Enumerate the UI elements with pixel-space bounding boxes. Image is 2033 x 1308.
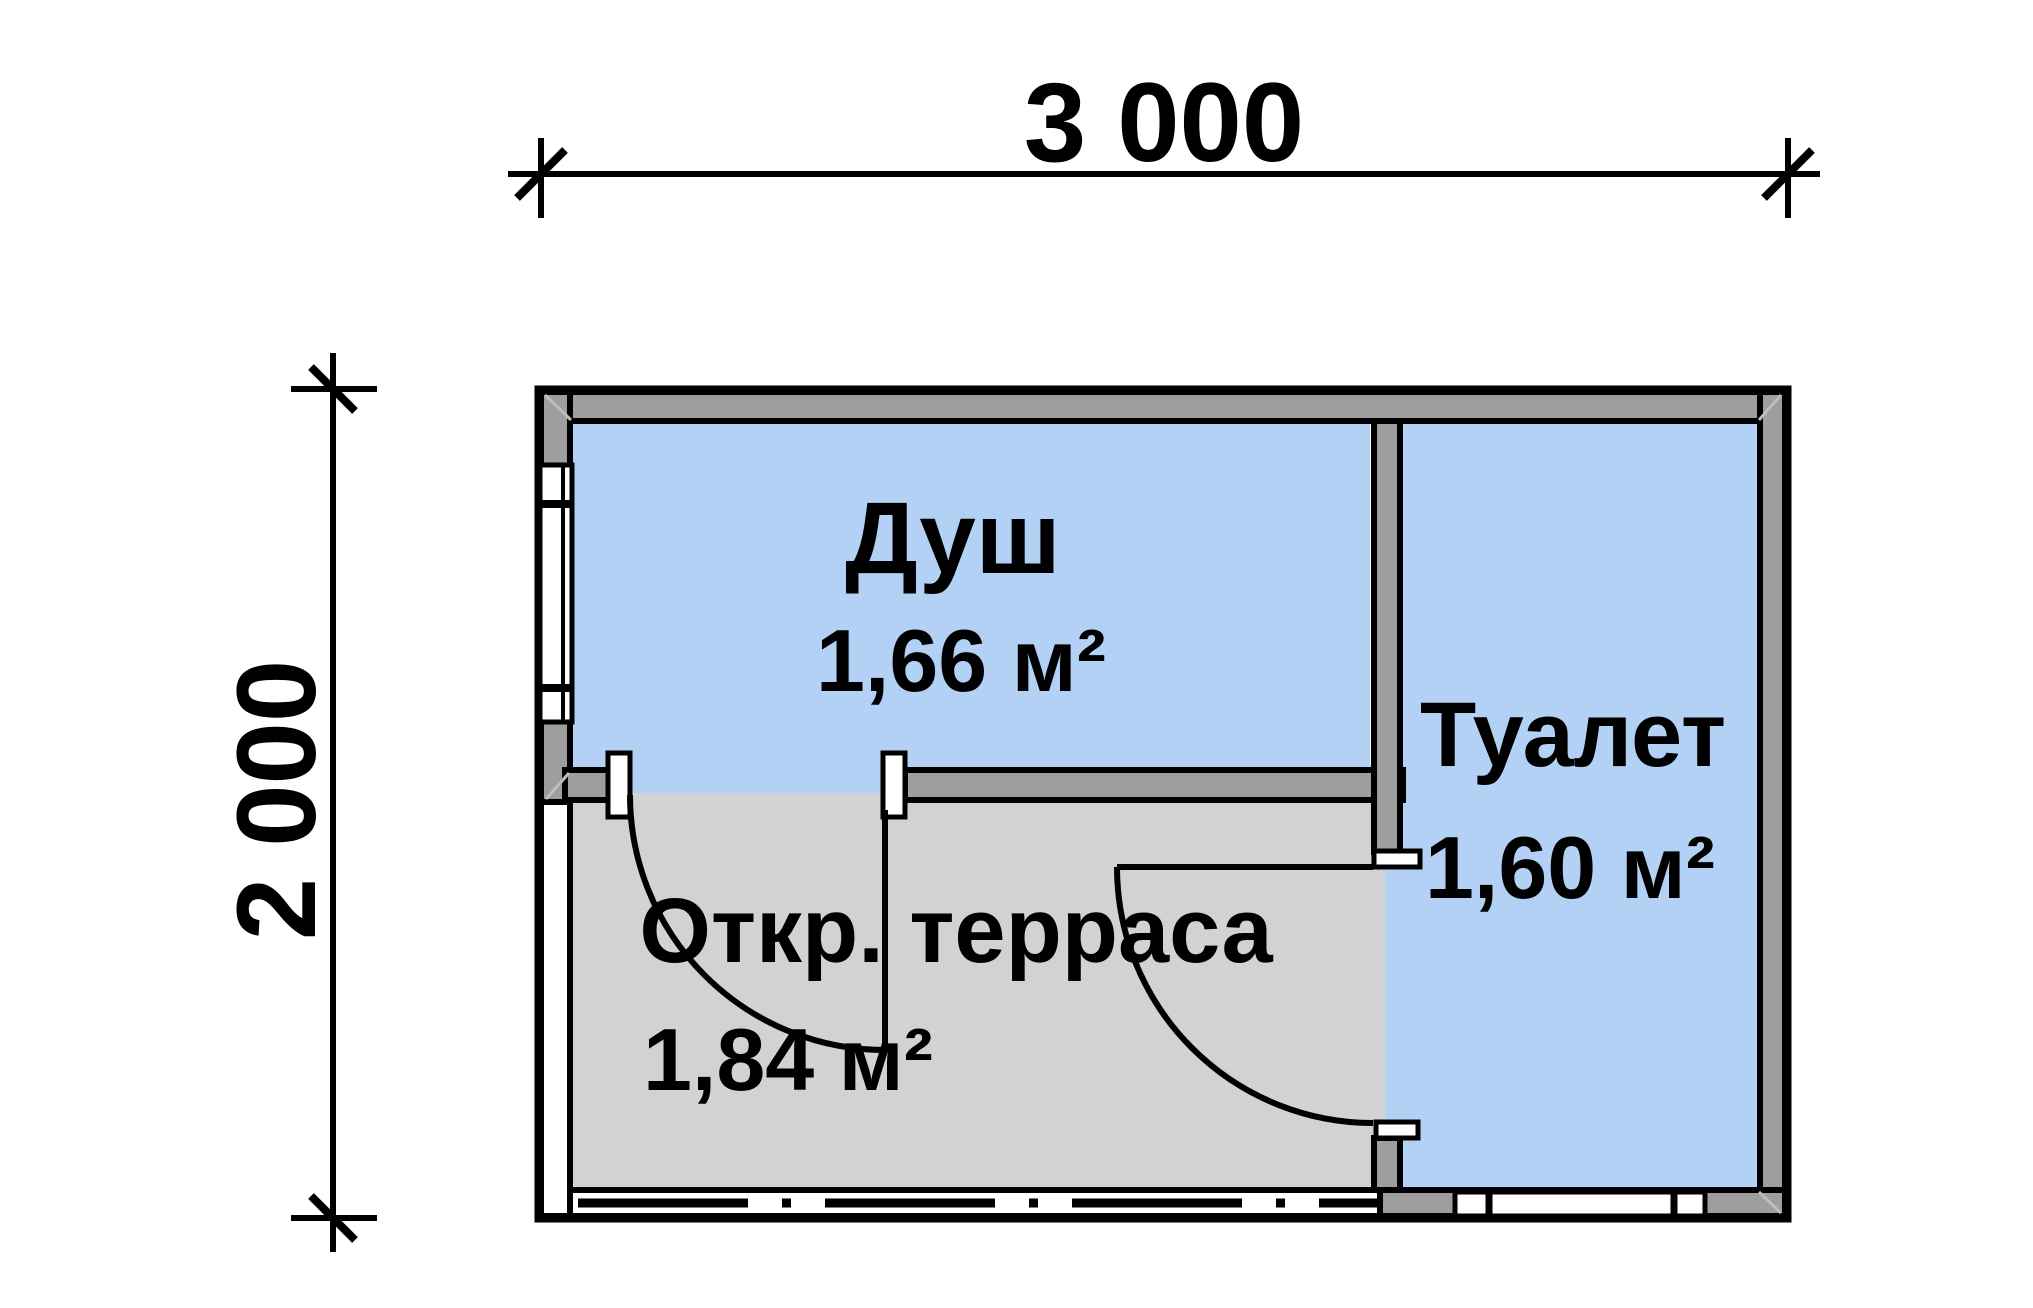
- floor-plan-canvas: 3 000 2 000 Душ 1,66 м² Туалет 1,60 м² О…: [0, 0, 2033, 1308]
- shower-floor: [570, 415, 1370, 793]
- room-label-shower: Душ: [845, 487, 1061, 589]
- toilet-floor: [1385, 418, 1760, 1193]
- window-left-wall: [540, 465, 572, 722]
- room-area-terrace: 1,84 м²: [643, 1016, 933, 1104]
- room-label-terrace: Откр. терраса: [639, 885, 1272, 977]
- dimension-top-label: 3 000: [1024, 67, 1304, 179]
- room-label-toilet: Туалет: [1420, 689, 1726, 781]
- room-area-toilet: 1,60 м²: [1425, 824, 1715, 912]
- dimension-left-label: 2 000: [221, 660, 333, 940]
- room-area-shower: 1,66 м²: [816, 617, 1106, 705]
- window-toilet-bottom-wall: [1455, 1192, 1705, 1216]
- wall-right: [1760, 392, 1785, 1216]
- terrace-edge-left: [541, 802, 570, 1216]
- wall-top: [541, 392, 1785, 421]
- terrace-edge-bottom: [570, 1190, 1380, 1216]
